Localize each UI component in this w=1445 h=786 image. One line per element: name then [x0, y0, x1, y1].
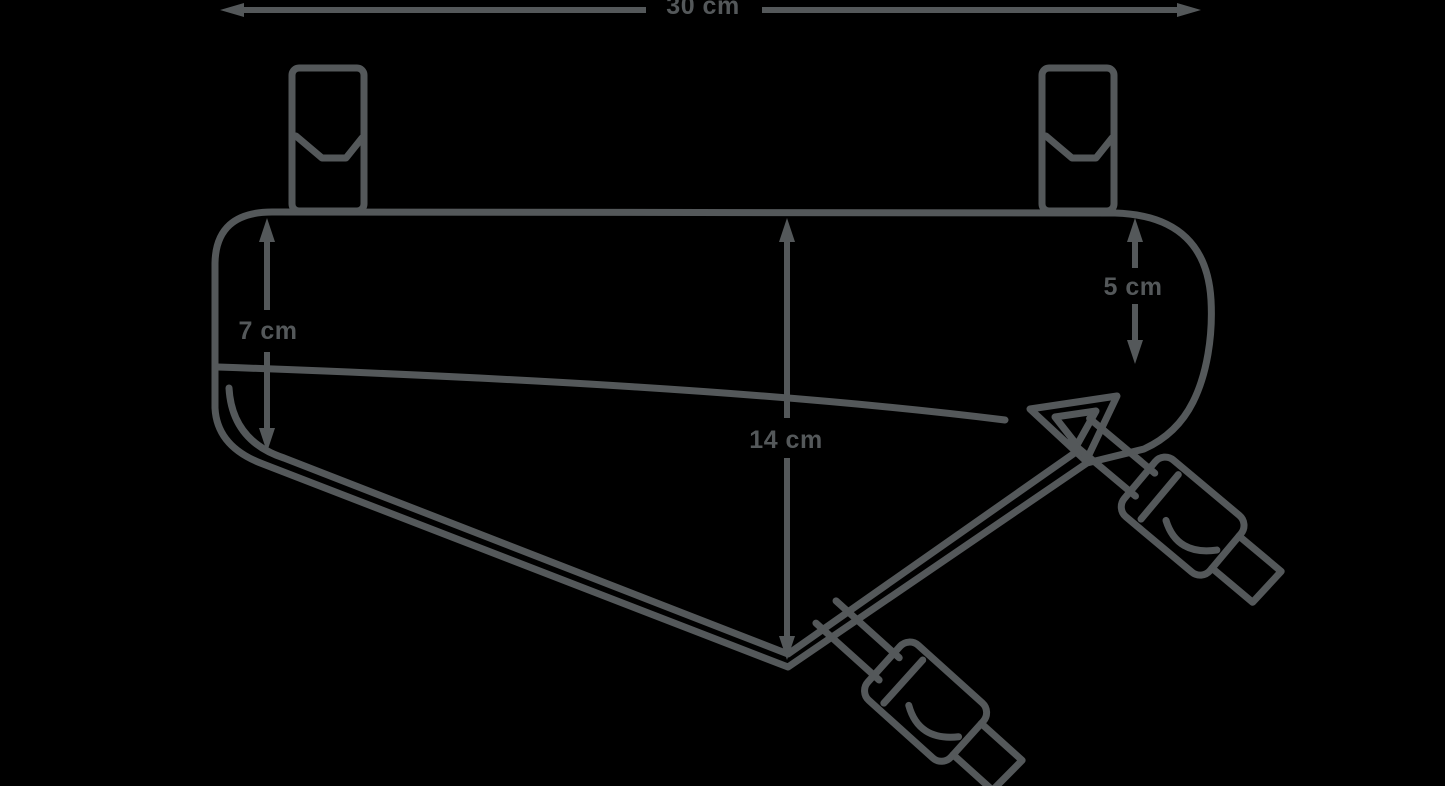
arrowhead-up	[259, 218, 275, 242]
rear-height-label: 5 cm	[1104, 273, 1163, 301]
dimension-front-height: 7 cm	[239, 218, 298, 452]
arrowhead-up	[1127, 218, 1143, 242]
front-height-label: 7 cm	[239, 317, 298, 345]
max-height-label: 14 cm	[749, 426, 822, 454]
strap-tail	[1212, 536, 1281, 604]
diagram-canvas: 30 cm 7 cm 14 cm 5 cm	[0, 0, 1445, 786]
strap-tail	[953, 724, 1022, 786]
arrowhead-right	[1177, 3, 1201, 17]
bag-body	[215, 212, 1211, 667]
arrowhead-left	[220, 3, 244, 17]
frame-bag-dimension-diagram: 30 cm 7 cm 14 cm 5 cm	[0, 0, 1445, 786]
top-strap-left	[292, 68, 364, 211]
arrowhead-up	[779, 218, 795, 242]
top-strap-right	[1042, 68, 1114, 211]
buckle-strap-bottom	[801, 585, 1033, 786]
dimension-rear-height: 5 cm	[1104, 218, 1163, 364]
arrowhead-down	[1127, 340, 1143, 364]
width-label: 30 cm	[666, 0, 739, 20]
strap-fold-notch	[1046, 136, 1112, 158]
buckle-bar	[1141, 475, 1178, 519]
strap-fold-notch	[296, 136, 362, 158]
dimension-width: 30 cm	[220, 0, 1201, 20]
ladderlock-buckle	[859, 637, 992, 767]
dimension-max-height: 14 cm	[749, 218, 822, 660]
buckle-bar	[884, 660, 923, 703]
buckle-strap-right	[1056, 402, 1291, 616]
ladderlock-buckle	[1116, 452, 1249, 581]
bag-seam-line	[218, 367, 1005, 420]
